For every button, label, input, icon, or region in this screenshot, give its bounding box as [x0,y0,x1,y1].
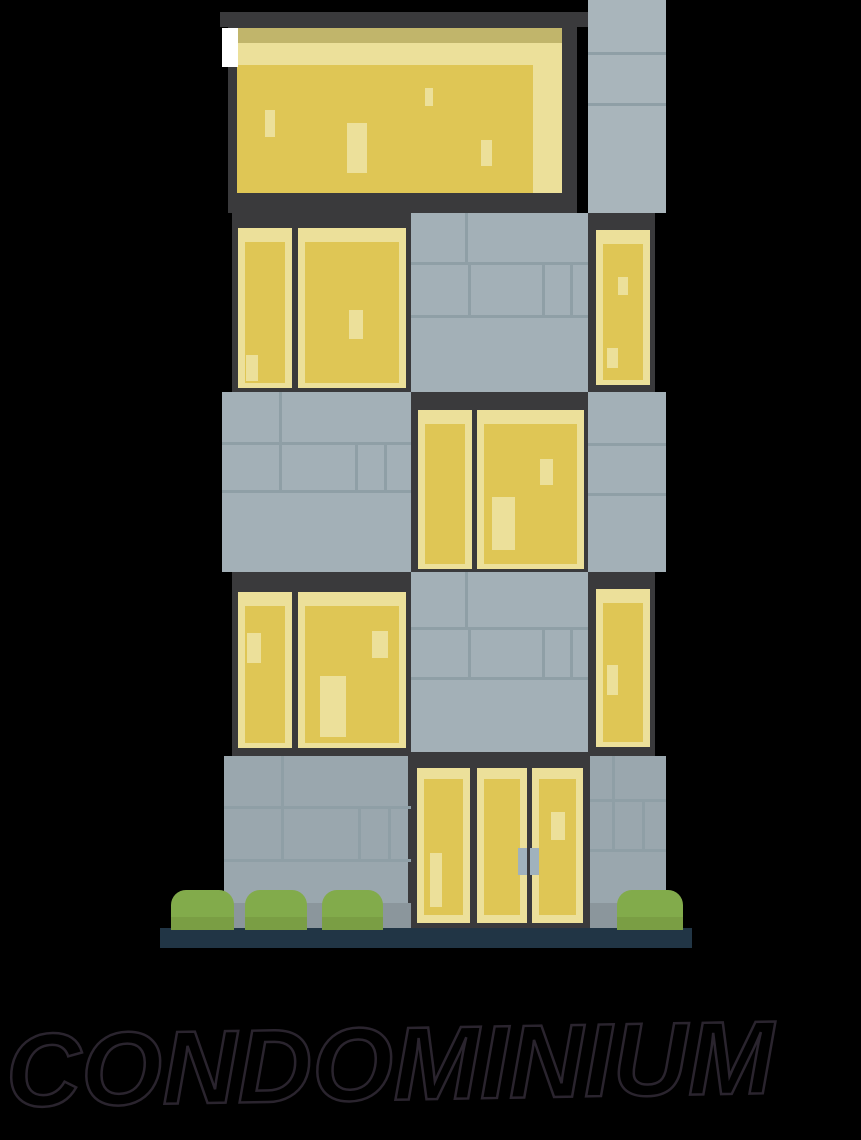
brick-line [411,315,588,318]
floor4-window-wide [298,228,406,388]
window-reflection [481,140,492,166]
brick-line [542,265,545,315]
brick-line [612,802,615,849]
window-reflection [607,348,618,368]
brick-line [281,756,284,806]
window-reflection [247,633,261,663]
base-platform [160,928,692,948]
brick-line [590,799,666,802]
brick-line [279,445,282,490]
brick-line [222,442,411,445]
bush-icon [322,890,383,930]
door-handle [518,848,527,875]
floor3-right-wall [588,392,666,572]
window-reflection [492,497,515,550]
brick-line [612,756,615,799]
floor4-window-right [596,230,650,385]
brick-line [355,445,358,490]
window-reflection [425,88,433,106]
brick-line [588,443,666,446]
door-handle [530,848,539,875]
window-reflection [320,676,346,737]
bush-icon [245,890,307,930]
brick-line [224,806,411,809]
brick-line [281,809,284,859]
floor2-window-narrow [238,592,292,748]
window-reflection [618,277,628,295]
brick-line [590,849,666,852]
window-reflection [540,459,553,485]
brick-line [588,52,666,55]
brick-line [642,802,645,849]
bush-icon [171,890,234,930]
roof-bar [220,12,588,27]
floor5-big-window [237,28,562,193]
floor4-middle-wall [411,213,588,392]
brick-line [384,445,387,490]
window-reflection [607,665,618,695]
entrance-door-middle [477,768,527,923]
window-reflection [349,310,363,339]
brick-line [411,262,588,265]
window-glass [237,65,533,193]
window-reflection [347,123,367,173]
brick-line [411,627,588,630]
brick-line [388,809,391,859]
brick-line [570,630,573,677]
brick-line [358,809,361,859]
entrance-door-right [532,768,583,923]
window-reflection [265,110,275,137]
caption-text: CONDOMINIUM [5,994,861,1139]
door-reflection [430,853,442,907]
window-reflection [246,355,258,381]
bush-icon [617,890,683,930]
window-top-band [237,28,562,43]
floor2-window-right [596,589,650,747]
door-reflection [551,812,565,840]
brick-line [222,490,411,493]
right-column-wall [588,0,666,213]
condominium-illustration: CONDOMINIUM [0,0,861,1140]
entrance-door-left [417,768,470,923]
brick-line [542,630,545,677]
floor3-window-narrow [418,410,472,569]
brick-line [465,213,468,262]
window-highlight [222,28,238,67]
window-reflection [372,631,388,658]
brick-line [468,265,471,315]
brick-line [465,572,468,627]
brick-line [468,630,471,677]
brick-line [588,103,666,106]
brick-line [588,493,666,496]
floor2-window-wide [298,592,406,748]
brick-line [224,859,411,862]
floor3-left-wall [222,392,411,572]
floor2-middle-wall [411,572,588,756]
brick-line [411,677,588,680]
brick-line [279,392,282,442]
brick-line [570,265,573,315]
